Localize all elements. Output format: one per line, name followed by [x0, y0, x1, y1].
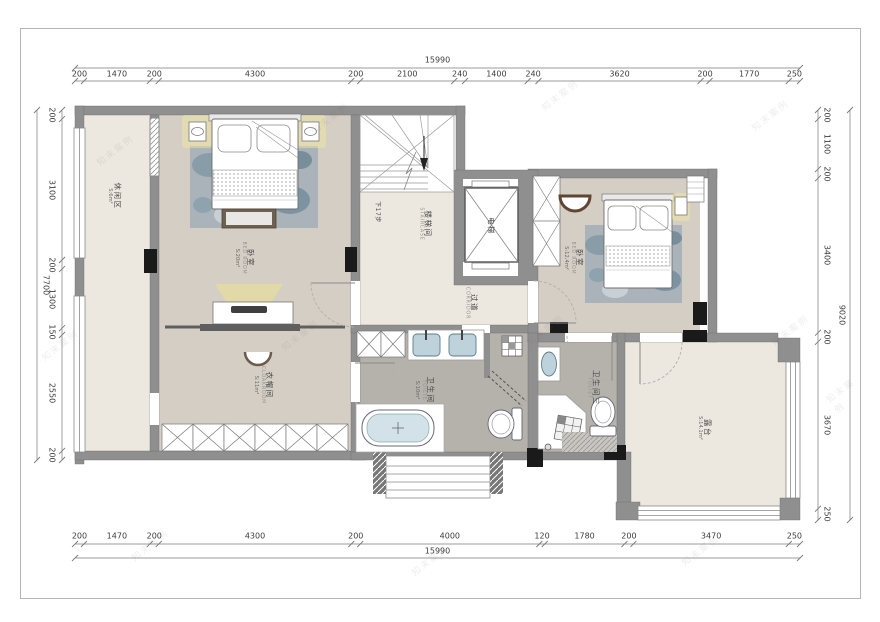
floor-plan-page: 休闲区 S:6m² 卧室 BED ROOM S:20m² 楼梯间 STAIRCA…	[0, 0, 880, 622]
floor-plan-drawing	[0, 0, 880, 622]
toilet-icon	[590, 397, 616, 436]
toilet-icon	[488, 408, 522, 440]
sink-icon	[542, 352, 557, 376]
radiator-icon	[687, 176, 704, 202]
elevator-icon	[463, 179, 518, 276]
double-bed-icon	[602, 194, 674, 288]
